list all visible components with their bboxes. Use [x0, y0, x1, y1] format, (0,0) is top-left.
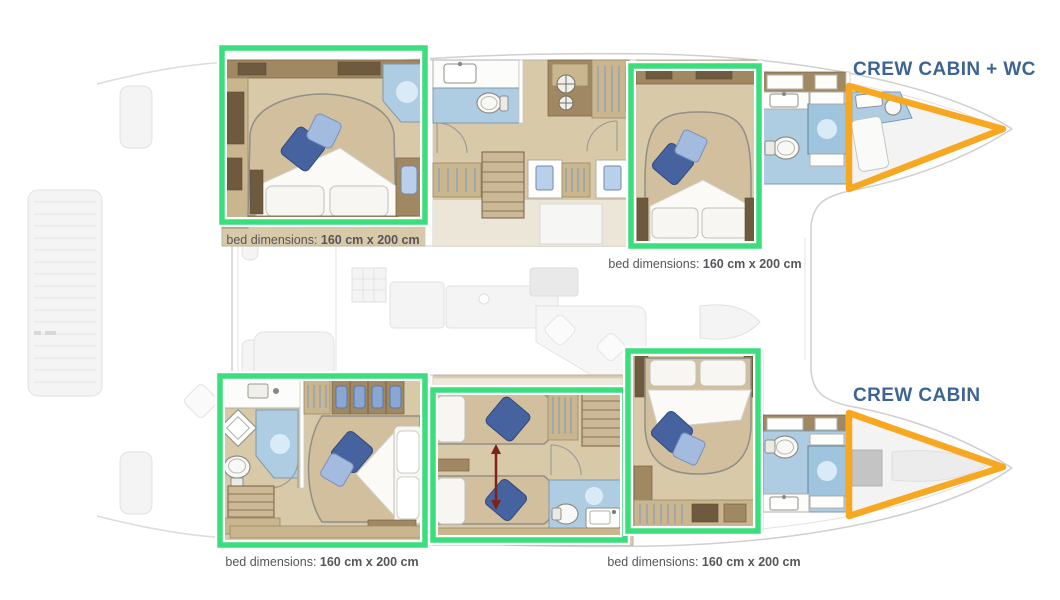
shelf-with-shirts [332, 380, 404, 414]
crew-cabin-wc-label: CREW CABIN + WC [853, 59, 1036, 81]
shower-icon [808, 104, 846, 154]
caption-prefix: bed dimensions: [607, 555, 698, 569]
wardrobe-icon [304, 380, 330, 414]
caption-value: 160 cm x 200 cm [702, 555, 801, 569]
floorplan-graphic [0, 0, 1060, 600]
sink-icon [770, 495, 798, 510]
sink-icon [770, 92, 798, 107]
bathroom-port-fore [763, 72, 850, 185]
bed-dimensions-caption: bed dimensions: 160 cm x 200 cm [225, 555, 418, 570]
bed-dimensions-caption: bed dimensions: 160 cm x 200 cm [608, 257, 801, 272]
wardrobe-icon [548, 392, 578, 440]
caption-value: 160 cm x 200 cm [321, 233, 420, 247]
wardrobe-icon [562, 163, 590, 197]
bed-dimensions-caption: bed dimensions: 160 cm x 200 cm [607, 555, 800, 570]
crew-cabin-label: CREW CABIN [853, 385, 981, 407]
toilet-icon [477, 93, 508, 113]
wardrobe-icon [592, 60, 630, 118]
bathroom-port-mid [433, 60, 523, 123]
caption-value: 160 cm x 200 cm [320, 555, 419, 569]
galley-unit-icon [548, 60, 592, 116]
catamaran-layout-plan: CREW CABIN + WC CREW CABIN bed dimension… [0, 0, 1060, 600]
caption-prefix: bed dimensions: [225, 555, 316, 569]
cabin-fore-starboard [634, 355, 757, 528]
swim-platform [28, 190, 102, 396]
stairs-icon [228, 486, 274, 522]
caption-prefix: bed dimensions: [226, 233, 317, 247]
stairs-icon [582, 392, 626, 446]
stairs-icon [482, 152, 524, 218]
caption-prefix: bed dimensions: [608, 257, 699, 271]
mast-icon [479, 294, 489, 304]
shower-icon [808, 446, 846, 496]
wardrobe-icon [433, 163, 481, 197]
crew-cabin-area [850, 414, 1004, 515]
sink-icon [586, 508, 620, 528]
bathroom-mid-starboard [549, 480, 623, 536]
bathroom-starboard-fore [763, 415, 850, 512]
sink-icon [444, 62, 476, 83]
wardrobe-icon [634, 500, 757, 528]
caption-value: 160 cm x 200 cm [703, 257, 802, 271]
bed-dimensions-caption: bed dimensions: 160 cm x 200 cm [226, 233, 419, 248]
